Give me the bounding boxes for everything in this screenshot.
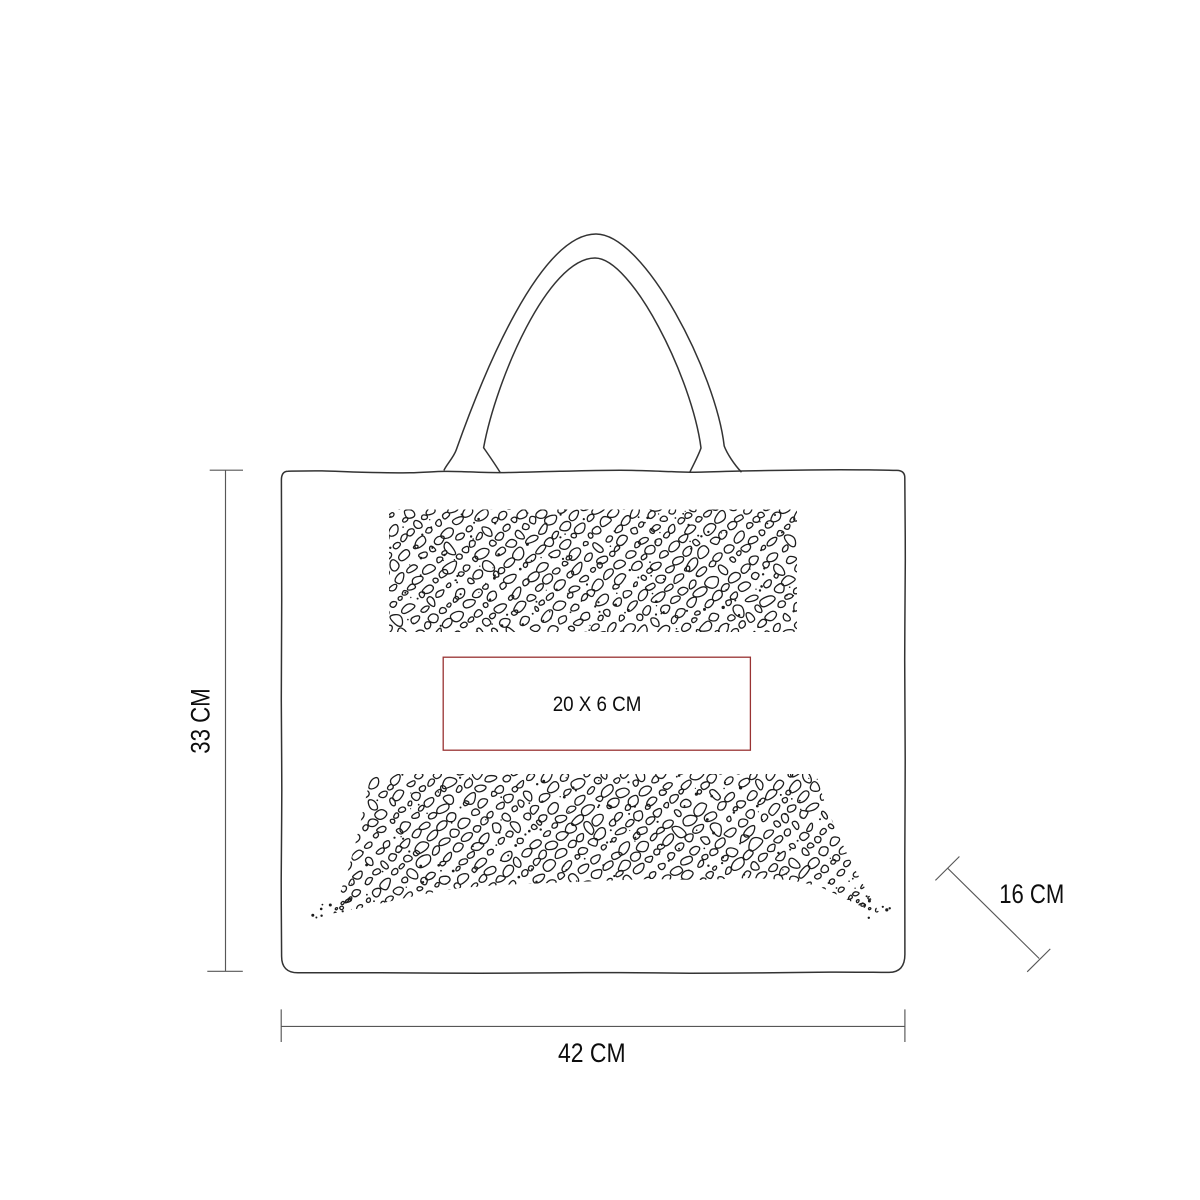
svg-text:42 CM: 42 CM: [558, 1038, 626, 1068]
svg-text:33 CM: 33 CM: [185, 688, 215, 754]
svg-text:16 CM: 16 CM: [999, 879, 1064, 909]
svg-text:20 X 6 CM: 20 X 6 CM: [553, 693, 642, 716]
